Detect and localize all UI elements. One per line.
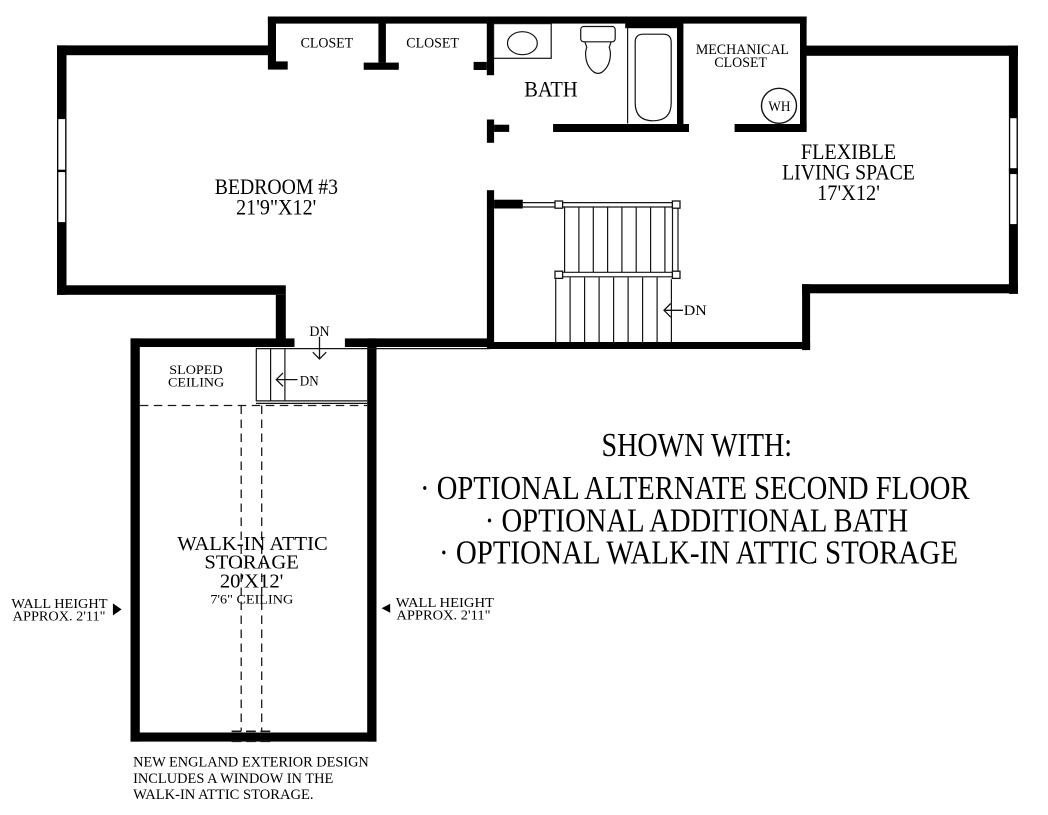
- svg-text:SHOWN WITH:: SHOWN WITH:: [602, 427, 793, 464]
- svg-text:17'X12': 17'X12': [817, 180, 880, 205]
- svg-text:21'9"X12': 21'9"X12': [236, 195, 316, 220]
- svg-text:DN: DN: [309, 324, 329, 340]
- svg-text:APPROX. 2'11": APPROX. 2'11": [13, 608, 106, 623]
- svg-text:· OPTIONAL ALTERNATE SECOND F: · OPTIONAL ALTERNATE SECOND FLOOR: [420, 470, 970, 507]
- svg-text:CLOSET: CLOSET: [301, 36, 354, 52]
- svg-text:DN: DN: [300, 374, 319, 390]
- svg-text:BATH: BATH: [524, 77, 578, 102]
- svg-text:7'6" CEILING: 7'6" CEILING: [210, 591, 293, 606]
- svg-text:WH: WH: [768, 99, 790, 115]
- svg-text:CLOSET: CLOSET: [714, 55, 767, 71]
- svg-text:WALK-IN ATTIC STORAGE.: WALK-IN ATTIC STORAGE.: [133, 787, 313, 803]
- svg-text:20'X12': 20'X12': [220, 571, 284, 593]
- svg-text:DN: DN: [684, 303, 707, 319]
- svg-text:INCLUDES A WINDOW IN THE: INCLUDES A WINDOW IN THE: [133, 771, 333, 787]
- svg-text:CLOSET: CLOSET: [406, 36, 459, 52]
- svg-text:CEILING: CEILING: [168, 375, 224, 389]
- svg-text:· OPTIONAL WALK-IN ATTIC STOR: · OPTIONAL WALK-IN ATTIC STORAGE: [439, 535, 958, 572]
- svg-text:APPROX. 2'11": APPROX. 2'11": [396, 607, 490, 622]
- svg-text:NEW ENGLAND EXTERIOR DESIGN: NEW ENGLAND EXTERIOR DESIGN: [133, 755, 369, 771]
